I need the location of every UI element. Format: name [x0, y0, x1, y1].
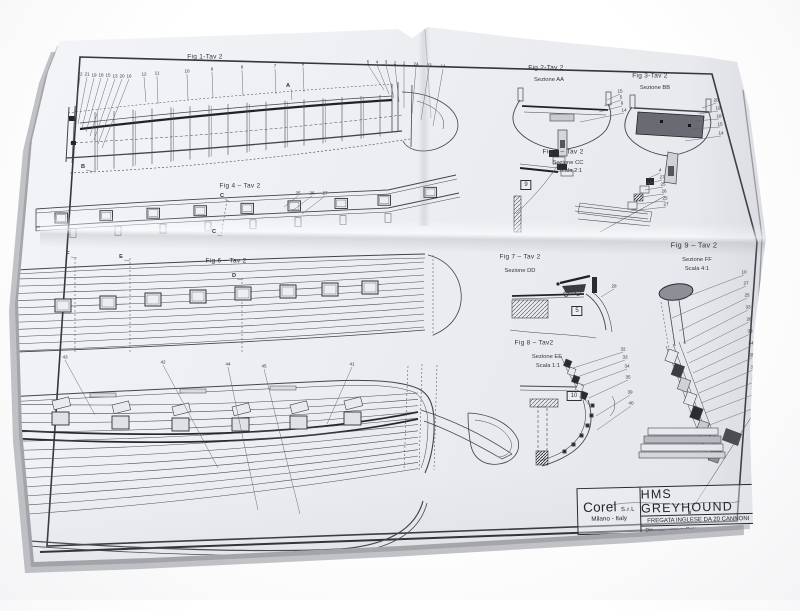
- callout-label: 33: [747, 329, 752, 334]
- callout-label: 34: [748, 341, 753, 346]
- section-marker: F: [66, 251, 69, 257]
- section-label: Sezione AA: [534, 77, 564, 83]
- callout-label: 25: [662, 196, 667, 201]
- section-marker: E: [119, 254, 123, 260]
- callout-label: 38: [752, 389, 757, 394]
- callout-label: 25: [295, 191, 300, 196]
- figure-label: Fig 3-Tav 2: [632, 73, 667, 80]
- callout-label: 18: [716, 114, 721, 119]
- figure-label: Fig 5 – Tav 2: [543, 149, 584, 156]
- callout-label: 33: [745, 305, 750, 310]
- callout-label: 3: [385, 60, 388, 65]
- callout-label: 10: [754, 402, 759, 407]
- section-marker: C: [220, 193, 224, 199]
- callout-label: 25: [744, 293, 749, 298]
- figure-label: Fig 2-Tav 2: [528, 65, 563, 72]
- callout-label: 22: [77, 72, 82, 77]
- scale-label: Scala 2:1: [558, 168, 582, 174]
- callout-label: 15: [717, 122, 722, 127]
- callout-label: 27: [322, 191, 327, 196]
- callout-label: 36: [750, 365, 755, 370]
- callout-label: 24: [413, 62, 418, 67]
- section-label: Sezione FF: [682, 257, 712, 263]
- section-label: Sezione DD: [505, 268, 536, 274]
- callout-label: 34: [624, 364, 629, 369]
- figure-label: Fig 8 – Tav2: [515, 340, 554, 347]
- callout-label: 4: [376, 60, 379, 65]
- callout-label: 33: [622, 355, 627, 360]
- callout-label: 27: [743, 281, 748, 286]
- callout-label: 20: [119, 74, 124, 79]
- figure-label: Fig 9 – Tav 2: [671, 241, 718, 250]
- title-block-company-cell: Corel S.r.L Milano - Italy: [577, 488, 641, 535]
- callout-label: 26: [661, 189, 666, 194]
- callout-label: 6: [302, 62, 305, 67]
- figure-label: Fig 6 – Tav 2: [206, 258, 247, 265]
- callout-label: 10: [184, 69, 189, 74]
- figure-label: Fig 4 – Tav 2: [220, 183, 261, 190]
- callout-label: 39: [627, 390, 632, 395]
- plan-title: HMS GREYHOUND: [640, 485, 755, 516]
- callout-label: 7: [274, 64, 277, 69]
- callout-label: 4: [659, 168, 662, 173]
- section-label: Sezione CC: [553, 160, 584, 166]
- callout-label: 5: [367, 60, 370, 65]
- callout-label: 35: [749, 353, 754, 358]
- callout-label: 5: [620, 95, 623, 100]
- section-marker: D: [232, 273, 236, 279]
- callout-label: 44: [225, 362, 230, 367]
- callout-label: 2: [394, 61, 397, 66]
- callout-label: 21: [84, 72, 89, 77]
- callout-label: 27: [659, 175, 664, 180]
- callout-label: 26: [746, 317, 751, 322]
- callout-label: 23: [426, 63, 431, 68]
- callout-label: 25: [660, 182, 665, 187]
- callout-label: 16: [126, 74, 131, 79]
- callout-label: 10: [741, 270, 746, 275]
- callout-label: 20: [713, 98, 718, 103]
- scale-label: Scala 1:1: [536, 363, 560, 369]
- section-marker: C: [212, 229, 216, 235]
- callout-label: 37: [751, 377, 756, 382]
- plan-sheet-paper: Fig 1-Tav 2ABFig 2-Tav 2Sezione AAFig 3-…: [0, 0, 800, 600]
- callout-label: 19: [715, 106, 720, 111]
- callout-label: 13: [112, 74, 117, 79]
- callout-label: 45: [261, 364, 266, 369]
- callout-label: 9: [211, 67, 214, 72]
- callout-label: 41: [349, 362, 354, 367]
- callout-label: 12: [141, 72, 146, 77]
- callout-label: 15: [105, 73, 110, 78]
- callout-label: 42: [160, 360, 165, 365]
- scale-label: Scala 4:1: [685, 266, 709, 272]
- callout-label: 27: [663, 202, 668, 207]
- callout-label: 28: [611, 284, 616, 289]
- section-marker: B: [81, 164, 85, 170]
- callout-label: 26: [309, 191, 314, 196]
- section-label: Sezione EE: [532, 354, 562, 360]
- boxed-number: 9: [520, 180, 531, 190]
- figure-label: Fig 1-Tav 2: [187, 54, 222, 61]
- callout-label: 19: [91, 73, 96, 78]
- callout-label: 43: [62, 355, 67, 360]
- callout-label: 8: [241, 65, 244, 70]
- boxed-number: 5: [571, 306, 582, 316]
- callout-label: 14: [621, 108, 626, 113]
- photo-background: Fig 1-Tav 2ABFig 2-Tav 2Sezione AAFig 3-…: [0, 0, 800, 600]
- callout-label: 32: [620, 347, 625, 352]
- callout-label: 14: [718, 131, 723, 136]
- section-label: Sezione BB: [640, 85, 670, 91]
- callout-label: 18: [98, 73, 103, 78]
- callout-label: 11: [155, 71, 160, 76]
- company-name: Corel S.r.L: [583, 499, 635, 515]
- callout-label: 6: [621, 101, 624, 106]
- callout-label: 15: [617, 89, 622, 94]
- figure-label: Fig 7 – Tav 2: [500, 254, 541, 261]
- callout-label: 1: [403, 61, 406, 66]
- section-marker: A: [286, 83, 290, 89]
- callout-label: 40: [628, 401, 633, 406]
- callout-label: 14: [440, 64, 445, 69]
- company-city: Milano - Italy: [591, 515, 627, 523]
- boxed-number: 10: [567, 391, 582, 401]
- callout-label: 35: [625, 375, 630, 380]
